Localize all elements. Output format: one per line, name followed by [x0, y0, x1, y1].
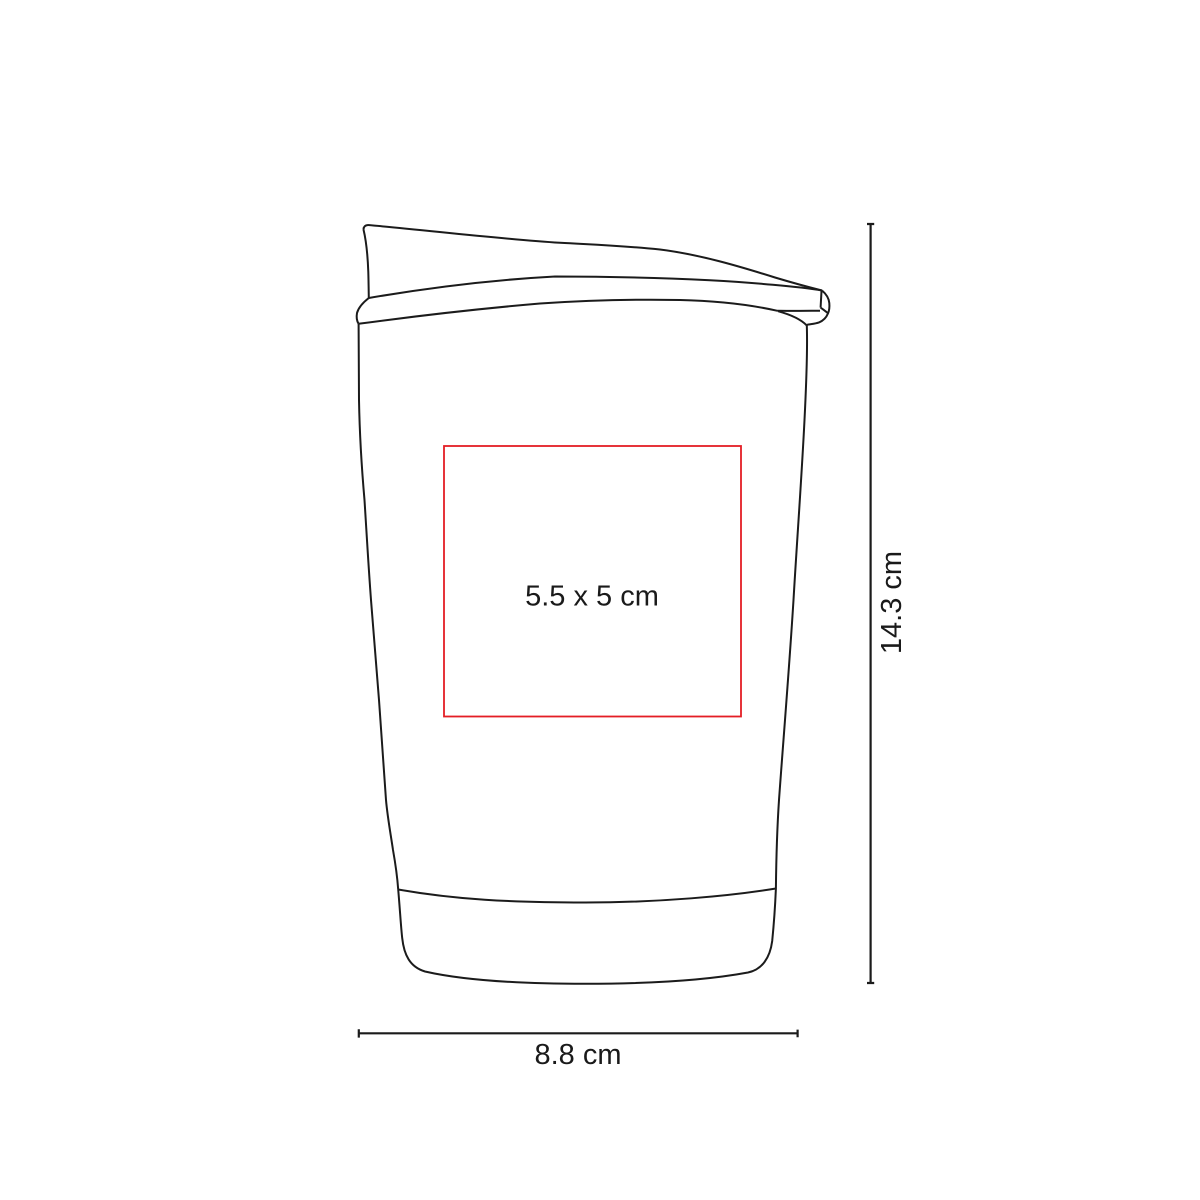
svg-text:5.5 x 5 cm: 5.5 x 5 cm	[525, 581, 659, 613]
svg-text:8.8 cm: 8.8 cm	[534, 1039, 621, 1071]
svg-text:14.3 cm: 14.3 cm	[876, 551, 908, 654]
